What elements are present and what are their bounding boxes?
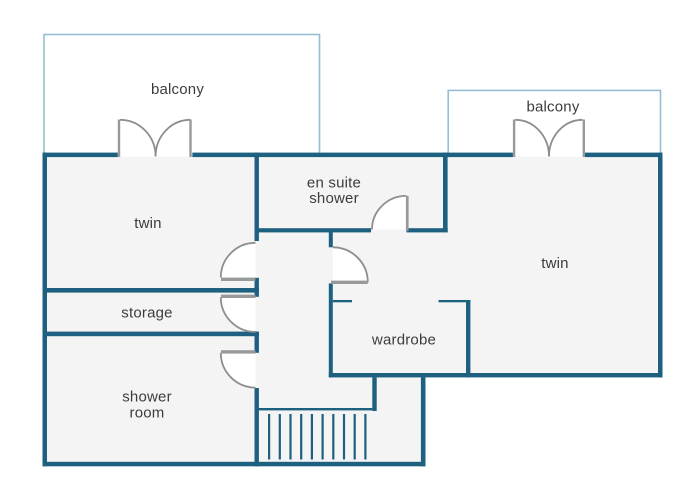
svg-text:twin: twin [134,215,161,232]
svg-text:balcony: balcony [151,81,204,98]
svg-text:wardrobe: wardrobe [371,332,436,349]
svg-text:room: room [130,405,165,422]
svg-text:balcony: balcony [526,99,579,116]
svg-text:en suite: en suite [307,175,361,192]
svg-text:storage: storage [121,305,172,322]
svg-text:twin: twin [541,255,568,272]
svg-text:shower: shower [122,389,172,406]
svg-text:shower: shower [309,190,359,207]
